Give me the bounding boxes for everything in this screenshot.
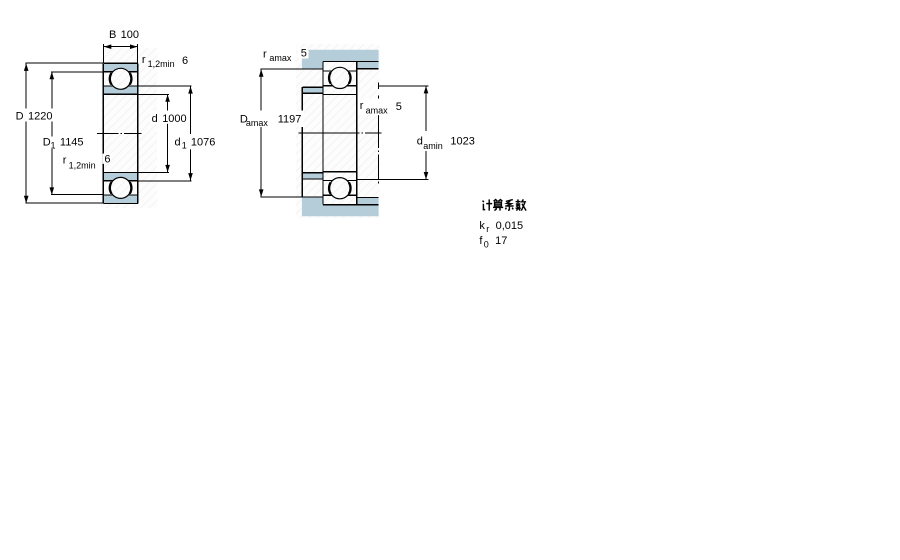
- svg-text:amin: amin: [423, 141, 443, 151]
- svg-text:r: r: [63, 154, 67, 166]
- svg-text:amax: amax: [246, 118, 269, 128]
- svg-text:r: r: [486, 224, 489, 234]
- svg-text:r: r: [360, 100, 364, 112]
- svg-text:1: 1: [182, 140, 187, 150]
- svg-text:6: 6: [104, 153, 110, 165]
- svg-text:6: 6: [182, 55, 188, 67]
- svg-text:5: 5: [301, 48, 307, 60]
- svg-text:0,015: 0,015: [496, 220, 524, 232]
- svg-text:r: r: [263, 48, 267, 60]
- svg-text:amax: amax: [366, 105, 389, 115]
- svg-text:amax: amax: [269, 53, 292, 63]
- svg-text:d: d: [152, 113, 158, 125]
- svg-text:D: D: [16, 111, 24, 123]
- svg-text:1023: 1023: [450, 136, 474, 148]
- svg-text:D: D: [43, 137, 51, 149]
- svg-text:5: 5: [396, 101, 402, 113]
- svg-text:1000: 1000: [162, 113, 186, 125]
- svg-text:1145: 1145: [60, 137, 84, 149]
- svg-text:1,2min: 1,2min: [69, 160, 96, 170]
- svg-text:1076: 1076: [191, 137, 215, 149]
- svg-text:d: d: [175, 137, 181, 149]
- svg-text:1: 1: [51, 140, 56, 150]
- svg-text:k: k: [479, 220, 485, 232]
- svg-text:17: 17: [495, 235, 507, 247]
- svg-text:0: 0: [484, 239, 489, 249]
- svg-text:1220: 1220: [28, 111, 52, 123]
- svg-text:d: d: [417, 135, 423, 147]
- svg-text:1,2min: 1,2min: [148, 59, 175, 69]
- svg-text:r: r: [142, 54, 146, 66]
- svg-text:100: 100: [121, 29, 139, 41]
- svg-text:1197: 1197: [278, 113, 302, 125]
- svg-text:B: B: [109, 29, 116, 41]
